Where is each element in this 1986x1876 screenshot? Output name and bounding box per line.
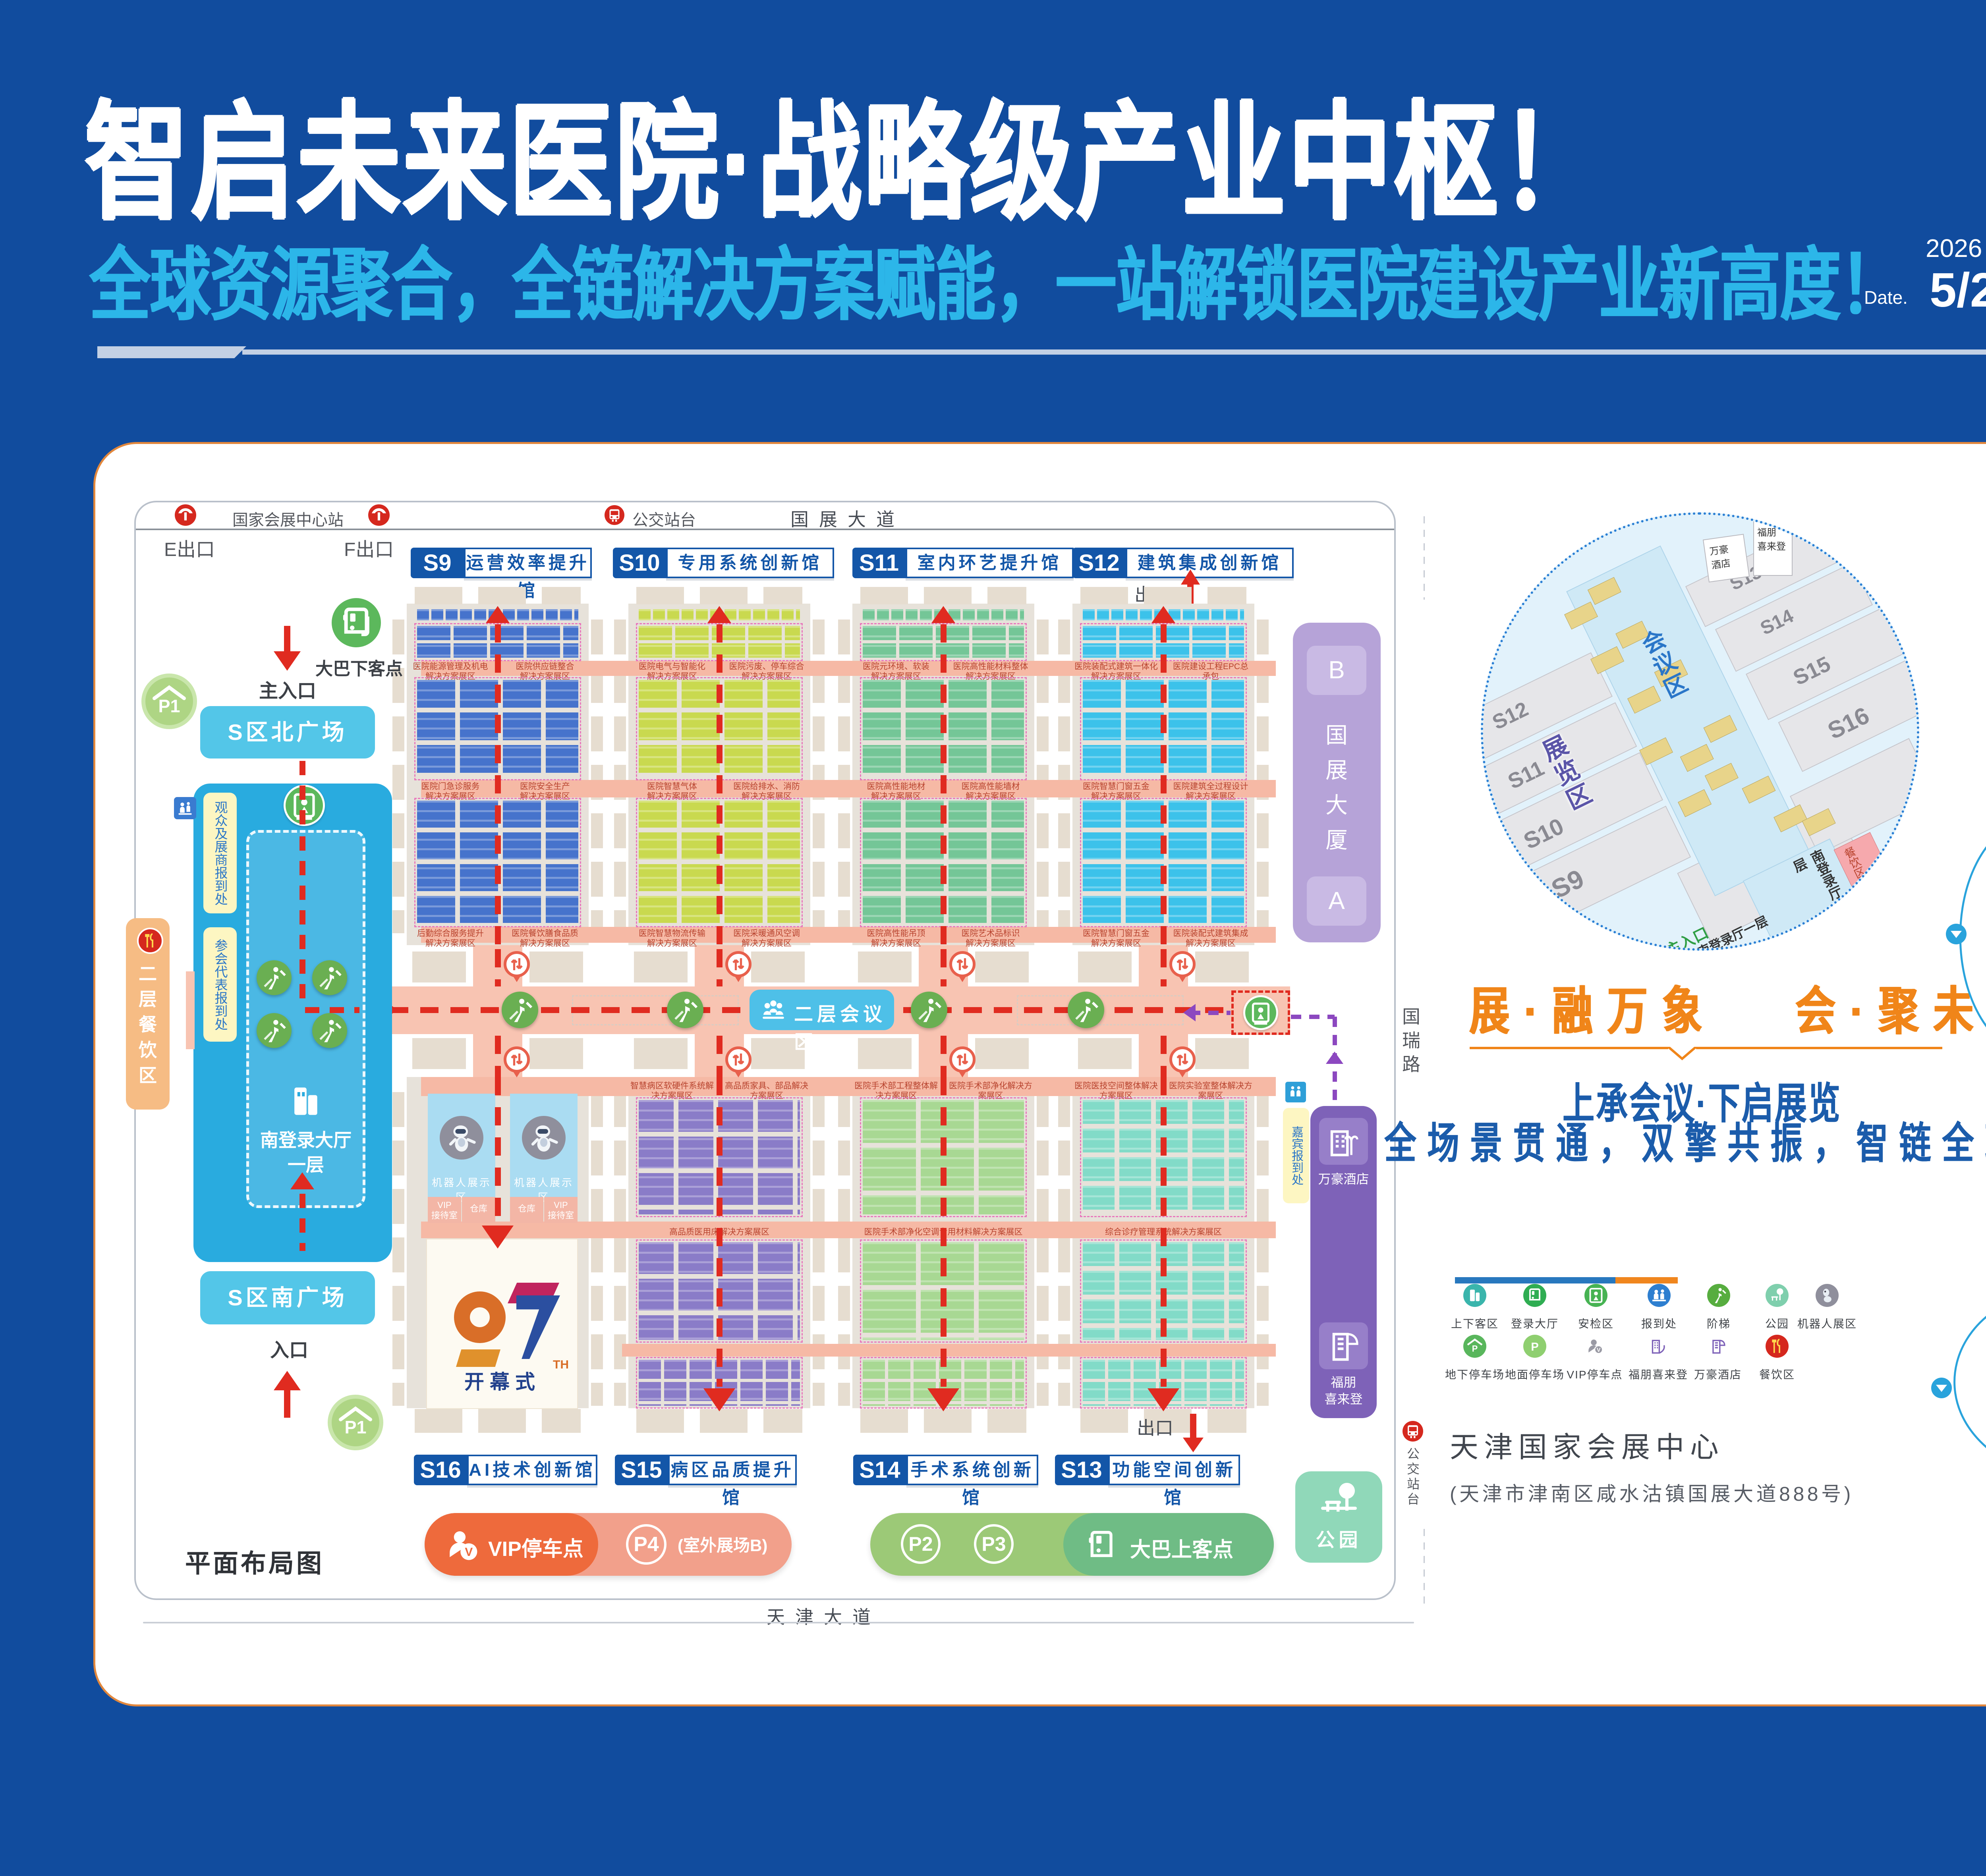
svg-text:V: V	[465, 1546, 473, 1559]
svg-text:P: P	[1531, 1341, 1538, 1353]
svg-text:P1: P1	[158, 696, 180, 716]
svg-text:P: P	[1472, 1343, 1478, 1353]
svg-text:V: V	[1597, 1347, 1601, 1353]
svg-text:P1: P1	[344, 1417, 366, 1438]
